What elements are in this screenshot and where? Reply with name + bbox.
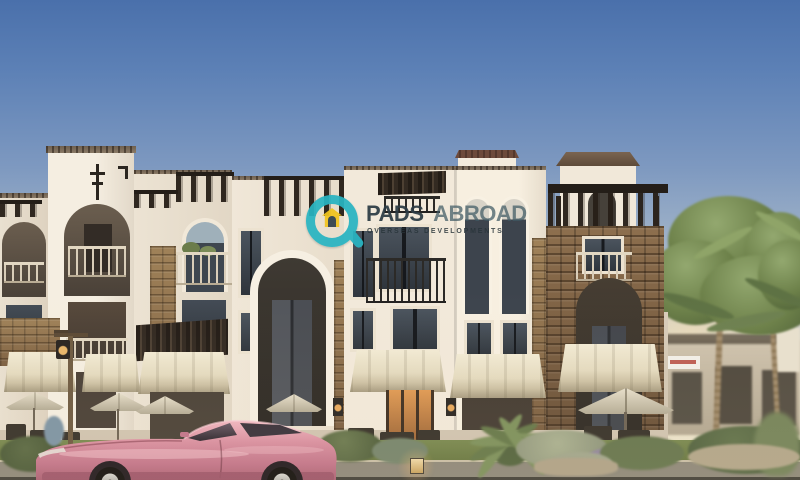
logo-subtitle: OVERSEAS DEVELOPMENTS <box>367 228 504 235</box>
sports-car <box>34 392 338 480</box>
awning <box>82 354 140 392</box>
background-sign-text-blur <box>670 360 696 364</box>
awning <box>558 344 662 392</box>
framed-window <box>464 320 494 358</box>
balcony-railing <box>366 258 446 303</box>
arched-opening <box>2 222 46 297</box>
light-bollard <box>410 458 424 474</box>
french-door <box>390 306 440 352</box>
garden-path <box>688 444 800 470</box>
logo-title: PADS ABROAD <box>366 201 527 227</box>
tower-parapet <box>46 146 136 153</box>
wall-hook <box>125 166 128 179</box>
car-side-highlight <box>224 446 324 454</box>
balcony-railing <box>68 246 126 277</box>
tile-cap <box>455 150 519 158</box>
car-side-highlight <box>59 449 249 459</box>
garden-path <box>534 458 618 476</box>
background-building-corner <box>776 328 800 372</box>
rooftop-pergola <box>176 172 234 202</box>
awning <box>350 350 446 392</box>
roof-cornice <box>0 193 48 198</box>
hip-roof-cap <box>556 152 640 166</box>
balcony-railing <box>576 252 632 281</box>
wall-lantern <box>446 398 456 416</box>
lantern <box>56 340 70 359</box>
balcony-railing <box>176 252 232 285</box>
framed-window <box>500 320 530 358</box>
awning <box>450 354 546 398</box>
car-mirror <box>180 432 189 437</box>
railing <box>4 262 44 283</box>
framed-window <box>350 308 376 352</box>
awning <box>138 352 230 394</box>
logo-title-primary: PADS <box>366 201 424 226</box>
architectural-render: PADS ABROAD OVERSEAS DEVELOPMENTS <box>0 0 800 480</box>
house-door-icon <box>328 216 336 227</box>
brand-watermark: PADS ABROAD OVERSEAS DEVELOPMENTS <box>300 192 516 252</box>
background-opening <box>716 366 752 424</box>
roof-cornice <box>456 166 546 170</box>
iron-emblem-bar <box>92 182 103 185</box>
magnifier-handle-icon <box>346 229 365 249</box>
roof-pergola <box>0 200 42 217</box>
iron-emblem-bar <box>90 172 105 175</box>
background-opening <box>672 372 702 424</box>
logo-title-secondary: ABROAD <box>433 201 527 226</box>
roof-cornice <box>344 166 456 170</box>
roof-railing <box>134 190 178 208</box>
